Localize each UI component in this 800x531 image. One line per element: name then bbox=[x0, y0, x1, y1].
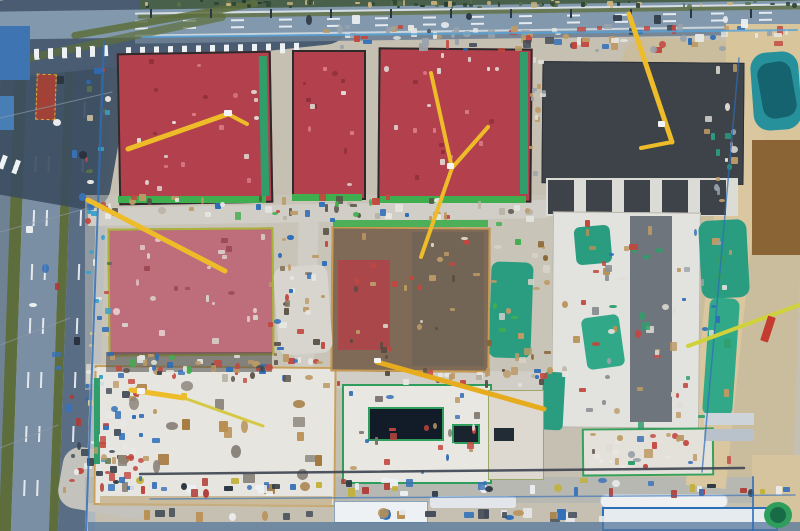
debris-speck bbox=[531, 97, 535, 101]
debris-speck bbox=[310, 104, 314, 109]
debris-speck bbox=[181, 162, 184, 167]
debris-speck bbox=[478, 482, 485, 490]
debris-speck bbox=[399, 509, 406, 515]
debris-speck bbox=[393, 36, 401, 40]
debris-speck bbox=[88, 400, 93, 406]
debris-speck bbox=[355, 278, 359, 284]
debris-speck bbox=[612, 480, 620, 487]
debris-speck bbox=[131, 195, 137, 200]
debris-speck bbox=[313, 339, 320, 344]
debris-speck bbox=[444, 2, 448, 7]
debris-speck bbox=[653, 355, 661, 358]
debris-speck bbox=[283, 354, 289, 362]
debris-speck bbox=[774, 33, 782, 37]
debris-speck bbox=[589, 246, 596, 250]
debris-speck bbox=[532, 88, 535, 93]
debris-speck bbox=[308, 358, 313, 365]
debris-speck bbox=[325, 241, 328, 248]
debris-speck bbox=[375, 437, 378, 445]
debris-speck bbox=[716, 274, 724, 279]
debris-speck bbox=[144, 266, 150, 272]
debris-speck bbox=[315, 455, 323, 466]
debris-speck bbox=[767, 31, 771, 36]
debris-speck bbox=[233, 93, 237, 98]
debris-speck bbox=[472, 424, 475, 431]
debris-speck bbox=[143, 359, 147, 365]
debris-speck bbox=[355, 483, 359, 490]
debris-speck bbox=[359, 417, 365, 424]
debris-speck bbox=[478, 201, 481, 209]
debris-speck bbox=[174, 286, 177, 292]
debris-speck bbox=[94, 447, 98, 454]
speckle-trucks-row bbox=[140, 508, 660, 522]
debris-speck bbox=[423, 368, 427, 375]
debris-speck bbox=[215, 399, 224, 409]
debris-speck bbox=[130, 486, 133, 493]
green-blob-br-inner bbox=[770, 507, 786, 523]
debris-speck bbox=[550, 1, 555, 7]
debris-speck bbox=[268, 322, 273, 327]
debris-speck bbox=[411, 28, 417, 37]
debris-speck bbox=[205, 212, 211, 217]
debris-speck bbox=[235, 212, 240, 220]
debris-speck bbox=[325, 204, 328, 212]
debris-speck bbox=[487, 67, 490, 71]
debris-speck bbox=[450, 443, 456, 449]
debris-speck bbox=[91, 211, 98, 216]
podium-pit-annex bbox=[494, 428, 514, 441]
debris-speck bbox=[306, 98, 311, 103]
debris-speck bbox=[312, 255, 319, 258]
debris-speck bbox=[421, 470, 425, 473]
debris-speck bbox=[613, 450, 619, 455]
debris-speck bbox=[498, 2, 500, 7]
debris-speck bbox=[164, 155, 168, 158]
debris-speck bbox=[446, 454, 450, 462]
debris-speck bbox=[613, 15, 622, 21]
debris-speck bbox=[691, 42, 698, 46]
debris-speck bbox=[437, 68, 441, 74]
debris-speck bbox=[389, 428, 396, 431]
debris-speck bbox=[404, 285, 407, 291]
debris-speck bbox=[586, 408, 593, 412]
debris-speck bbox=[369, 199, 372, 206]
debris-speck bbox=[718, 241, 721, 245]
debris-speck bbox=[312, 274, 316, 281]
debris-speck bbox=[652, 442, 658, 449]
debris-speck bbox=[487, 340, 492, 346]
debris-speck bbox=[639, 312, 645, 319]
debris-speck bbox=[770, 3, 775, 6]
debris-speck bbox=[407, 451, 410, 456]
debris-speck bbox=[341, 91, 346, 95]
debris-speck bbox=[774, 41, 783, 46]
debris-speck bbox=[308, 126, 311, 132]
debris-speck bbox=[450, 308, 455, 311]
debris-speck bbox=[463, 240, 469, 243]
debris-speck bbox=[488, 29, 494, 38]
debris-speck bbox=[683, 383, 688, 388]
debris-speck bbox=[265, 206, 272, 213]
debris-speck bbox=[425, 511, 436, 517]
debris-speck bbox=[203, 489, 209, 498]
debris-speck bbox=[514, 205, 520, 211]
light-pole-icon bbox=[150, 9, 152, 18]
debris-speck bbox=[365, 439, 369, 442]
debris-speck bbox=[169, 355, 175, 360]
debris-speck bbox=[248, 360, 254, 364]
debris-speck bbox=[615, 458, 620, 464]
debris-speck bbox=[321, 342, 325, 349]
speckle-red-block-1 bbox=[122, 58, 262, 192]
debris-speck bbox=[659, 41, 666, 48]
debris-speck bbox=[321, 295, 326, 298]
debris-speck bbox=[609, 460, 614, 463]
debris-speck bbox=[709, 330, 714, 336]
debris-speck bbox=[297, 432, 304, 441]
debris-speck bbox=[733, 64, 738, 72]
debris-speck bbox=[406, 479, 413, 487]
debris-speck bbox=[145, 2, 148, 6]
debris-speck bbox=[257, 2, 262, 5]
debris-speck bbox=[699, 489, 704, 497]
debris-speck bbox=[119, 477, 125, 483]
debris-speck bbox=[431, 243, 434, 247]
debris-speck bbox=[226, 3, 231, 5]
debris-speck bbox=[262, 511, 268, 521]
debris-speck bbox=[276, 210, 279, 214]
debris-speck bbox=[258, 485, 266, 494]
debris-speck bbox=[290, 211, 298, 215]
debris-speck bbox=[477, 6, 483, 9]
debris-speck bbox=[265, 364, 273, 371]
debris-speck bbox=[423, 71, 427, 75]
debris-speck bbox=[629, 28, 636, 34]
debris-speck bbox=[323, 29, 331, 33]
debris-speck bbox=[175, 198, 179, 202]
blue-building-left-2 bbox=[0, 96, 14, 130]
aerial-construction-photo bbox=[0, 0, 800, 531]
debris-speck bbox=[487, 1, 491, 6]
debris-speck bbox=[515, 239, 521, 244]
debris-speck bbox=[542, 3, 544, 6]
debris-speck bbox=[476, 375, 482, 380]
debris-speck bbox=[533, 57, 536, 62]
debris-speck bbox=[615, 440, 620, 444]
debris-speck bbox=[539, 379, 544, 385]
debris-speck bbox=[124, 472, 131, 480]
debris-speck bbox=[136, 279, 140, 286]
debris-speck bbox=[166, 422, 178, 430]
debris-speck bbox=[274, 342, 281, 346]
debris-speck bbox=[533, 171, 538, 176]
debris-speck bbox=[716, 256, 725, 265]
debris-speck bbox=[282, 238, 286, 241]
debris-speck bbox=[642, 322, 650, 329]
debris-speck bbox=[96, 471, 102, 475]
debris-speck bbox=[397, 6, 399, 8]
debris-speck bbox=[375, 213, 380, 219]
debris-speck bbox=[347, 183, 353, 187]
debris-speck bbox=[112, 208, 119, 216]
debris-speck bbox=[195, 361, 201, 365]
debris-speck bbox=[563, 34, 569, 39]
debris-speck bbox=[592, 342, 599, 345]
debris-speck bbox=[723, 16, 728, 24]
debris-speck bbox=[409, 276, 414, 280]
debris-speck bbox=[189, 207, 195, 210]
debris-speck bbox=[158, 207, 166, 214]
debris-speck bbox=[94, 68, 101, 73]
debris-speck bbox=[200, 0, 203, 2]
speckle-highway-cars bbox=[300, 12, 760, 28]
debris-speck bbox=[105, 110, 110, 115]
debris-speck bbox=[76, 418, 81, 427]
debris-speck bbox=[358, 390, 364, 395]
debris-speck bbox=[269, 282, 272, 287]
debris-speck bbox=[355, 2, 360, 4]
debris-speck bbox=[731, 129, 736, 135]
debris-speck bbox=[455, 39, 460, 45]
debris-speck bbox=[105, 308, 111, 315]
debris-speck bbox=[415, 175, 419, 180]
debris-speck bbox=[305, 298, 309, 304]
debris-speck bbox=[277, 347, 284, 350]
debris-speck bbox=[711, 133, 715, 140]
debris-speck bbox=[670, 342, 676, 350]
debris-speck bbox=[731, 157, 739, 164]
debris-speck bbox=[181, 381, 193, 391]
debris-speck bbox=[537, 84, 542, 88]
debris-speck bbox=[219, 125, 224, 130]
debris-speck bbox=[370, 282, 376, 286]
debris-speck bbox=[289, 6, 292, 8]
debris-speck bbox=[748, 489, 754, 497]
debris-speck bbox=[586, 229, 589, 235]
debris-speck bbox=[229, 513, 237, 522]
debris-speck bbox=[518, 383, 522, 387]
debris-speck bbox=[139, 355, 146, 360]
debris-speck bbox=[727, 164, 732, 171]
debris-speck bbox=[414, 3, 418, 7]
debris-speck bbox=[448, 1, 452, 6]
debris-speck bbox=[340, 45, 344, 50]
debris-speck bbox=[323, 228, 329, 235]
dark-slab-finger-4 bbox=[662, 180, 688, 213]
debris-speck bbox=[432, 491, 438, 497]
debris-speck bbox=[716, 316, 720, 323]
debris-speck bbox=[278, 253, 282, 258]
debris-speck bbox=[109, 473, 116, 481]
debris-speck bbox=[89, 344, 95, 347]
debris-speck bbox=[677, 268, 682, 272]
debris-speck bbox=[254, 1, 258, 6]
debris-speck bbox=[727, 456, 731, 463]
debris-speck bbox=[598, 478, 607, 483]
debris-speck bbox=[554, 39, 561, 46]
speckle-red-block-3 bbox=[382, 52, 524, 192]
debris-speck bbox=[499, 208, 506, 215]
debris-speck bbox=[392, 281, 399, 287]
debris-speck bbox=[440, 159, 445, 165]
debris-speck bbox=[555, 32, 561, 35]
dark-slab-finger-1 bbox=[548, 180, 574, 214]
debris-speck bbox=[222, 255, 227, 259]
debris-speck bbox=[306, 15, 312, 25]
debris-speck bbox=[322, 261, 327, 267]
debris-speck bbox=[196, 512, 203, 522]
debris-speck bbox=[293, 417, 305, 427]
debris-speck bbox=[637, 436, 644, 442]
debris-speck bbox=[228, 291, 235, 295]
debris-speck bbox=[354, 35, 360, 42]
debris-speck bbox=[234, 369, 239, 372]
debris-speck bbox=[203, 95, 208, 99]
debris-speck bbox=[207, 266, 210, 269]
debris-speck bbox=[544, 280, 550, 286]
debris-speck bbox=[554, 484, 562, 492]
debris-speck bbox=[166, 370, 174, 376]
debris-speck bbox=[637, 387, 643, 391]
debris-speck bbox=[266, 1, 271, 7]
debris-speck bbox=[81, 449, 89, 457]
debris-speck bbox=[350, 204, 357, 207]
debris-speck bbox=[702, 327, 708, 331]
debris-speck bbox=[337, 381, 340, 386]
debris-speck bbox=[392, 486, 398, 491]
debris-speck bbox=[147, 253, 151, 259]
debris-speck bbox=[719, 46, 726, 51]
debris-speck bbox=[688, 461, 693, 465]
debris-speck bbox=[356, 330, 360, 334]
debris-speck bbox=[538, 60, 544, 64]
debris-speck bbox=[429, 275, 436, 280]
debris-speck bbox=[620, 465, 625, 469]
debris-speck bbox=[306, 511, 313, 517]
debris-speck bbox=[290, 484, 296, 491]
bottom-blue-strip bbox=[88, 522, 800, 531]
debris-speck bbox=[704, 129, 710, 135]
rebar-soil-patch bbox=[752, 140, 800, 255]
debris-speck bbox=[460, 380, 465, 386]
debris-speck bbox=[484, 510, 490, 518]
debris-speck bbox=[350, 339, 353, 342]
debris-speck bbox=[435, 327, 439, 330]
debris-speck bbox=[371, 263, 376, 267]
debris-speck bbox=[319, 202, 324, 207]
debris-speck bbox=[164, 165, 168, 169]
debris-speck bbox=[395, 204, 402, 211]
debris-speck bbox=[485, 380, 488, 388]
debris-speck bbox=[473, 28, 478, 33]
debris-speck bbox=[611, 38, 618, 42]
debris-speck bbox=[332, 71, 338, 76]
debris-speck bbox=[529, 146, 533, 150]
debris-speck bbox=[90, 332, 96, 336]
debris-speck bbox=[384, 483, 390, 490]
debris-speck bbox=[535, 107, 541, 113]
debris-speck bbox=[776, 486, 782, 495]
debris-speck bbox=[433, 32, 437, 39]
debris-speck bbox=[448, 429, 452, 436]
debris-speck bbox=[192, 113, 196, 116]
debris-speck bbox=[469, 449, 473, 452]
debris-speck bbox=[55, 283, 60, 291]
debris-speck bbox=[431, 1, 437, 4]
debris-speck bbox=[93, 259, 96, 266]
debris-speck bbox=[181, 483, 187, 490]
debris-speck bbox=[455, 415, 460, 419]
debris-speck bbox=[532, 253, 538, 257]
debris-speck bbox=[614, 408, 620, 414]
debris-speck bbox=[438, 373, 443, 377]
debris-speck bbox=[266, 491, 273, 496]
debris-speck bbox=[441, 22, 450, 28]
debris-speck bbox=[499, 313, 506, 320]
debris-speck bbox=[607, 1, 613, 6]
debris-speck bbox=[785, 29, 788, 35]
debris-speck bbox=[287, 2, 293, 6]
debris-speck bbox=[316, 361, 323, 364]
debris-speck bbox=[316, 482, 321, 489]
debris-speck bbox=[354, 286, 357, 291]
debris-speck bbox=[690, 484, 696, 492]
debris-speck bbox=[493, 303, 497, 309]
debris-speck bbox=[157, 371, 161, 375]
debris-speck bbox=[231, 478, 239, 484]
debris-speck bbox=[585, 220, 591, 227]
debris-speck bbox=[305, 455, 315, 462]
debris-speck bbox=[460, 393, 464, 397]
debris-speck bbox=[469, 43, 478, 46]
debris-speck bbox=[524, 348, 532, 355]
debris-speck bbox=[122, 323, 127, 327]
debris-speck bbox=[662, 304, 669, 310]
debris-speck bbox=[686, 376, 690, 380]
debris-speck bbox=[496, 222, 503, 226]
debris-speck bbox=[380, 209, 386, 216]
debris-speck bbox=[152, 482, 157, 489]
debris-speck bbox=[580, 478, 587, 483]
debris-speck bbox=[562, 301, 568, 308]
debris-speck bbox=[682, 298, 686, 301]
debris-speck bbox=[143, 456, 149, 461]
debris-speck bbox=[711, 305, 716, 308]
debris-speck bbox=[211, 365, 216, 373]
debris-speck bbox=[427, 104, 431, 107]
debris-speck bbox=[363, 40, 372, 44]
debris-speck bbox=[592, 307, 599, 315]
debris-speck bbox=[191, 489, 198, 497]
debris-speck bbox=[307, 0, 312, 5]
debris-speck bbox=[636, 3, 641, 7]
debris-speck bbox=[515, 46, 522, 51]
debris-speck bbox=[224, 427, 232, 438]
debris-speck bbox=[494, 245, 502, 249]
debris-speck bbox=[261, 234, 265, 239]
debris-speck bbox=[741, 19, 748, 27]
debris-speck bbox=[231, 445, 241, 458]
debris-speck bbox=[485, 486, 493, 492]
debris-speck bbox=[26, 226, 33, 233]
debris-speck bbox=[186, 366, 193, 374]
debris-speck bbox=[101, 68, 105, 72]
debris-speck bbox=[386, 194, 390, 200]
debris-speck bbox=[725, 158, 728, 162]
debris-speck bbox=[609, 488, 613, 497]
debris-speck bbox=[241, 420, 248, 433]
debris-speck bbox=[259, 195, 263, 201]
